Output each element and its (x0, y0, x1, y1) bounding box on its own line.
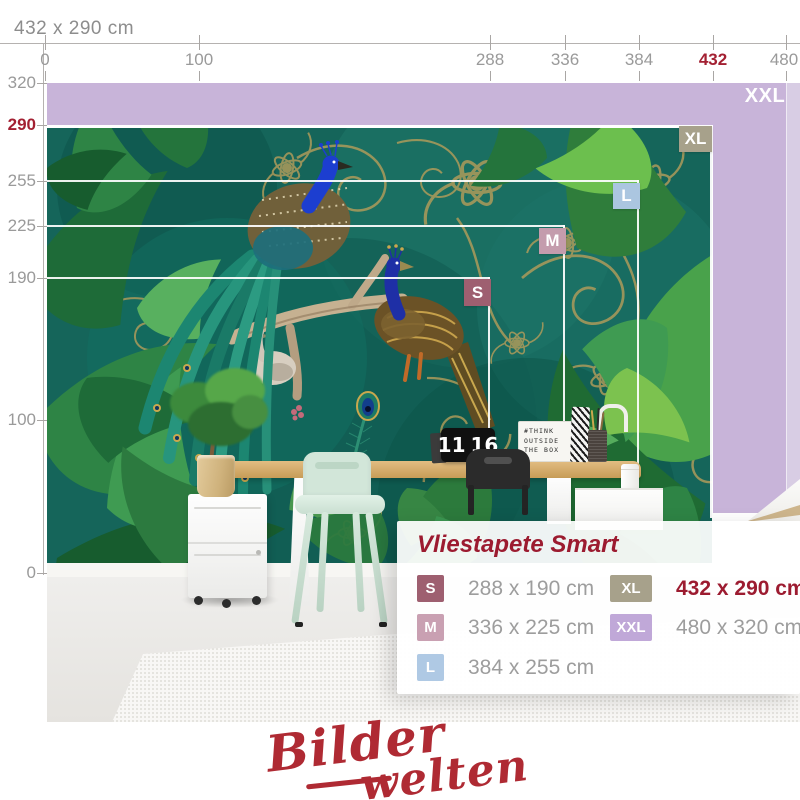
ruler-left-tick-0: 0 (2, 563, 36, 583)
ruler-top-line (0, 43, 800, 44)
cabinet-left (188, 494, 267, 598)
pen-cup (588, 430, 607, 462)
badge-label: M (545, 231, 559, 251)
size-swatch: XL (610, 575, 652, 602)
bilderwelten-logo: Bilder welten (248, 714, 578, 800)
xl-border-right (710, 125, 713, 518)
ruler-left-line (43, 43, 44, 575)
size-swatch: XXL (610, 614, 652, 641)
line-480-mark (786, 83, 787, 513)
ruler-left-tick-290: 290 (2, 115, 36, 135)
ruler-top-tick-432: 432 (699, 50, 727, 70)
size-swatch: L (417, 654, 444, 681)
caster (222, 599, 231, 608)
selected-dimensions-label: 432 x 290 cm (14, 18, 134, 40)
product-size-visualization: 11 16 #THINK OUTSIDE THE BOX (0, 0, 800, 800)
size-info-panel: Vliestapete Smart S 288 x 190 cm M 336 x… (397, 521, 800, 694)
patterned-notebook (570, 407, 590, 463)
ruler-top-tick-0: 0 (40, 50, 49, 70)
size-dims: 288 x 190 cm (468, 577, 594, 601)
caster (252, 596, 261, 605)
size-row-l: L 384 x 255 cm (417, 654, 594, 681)
ruler-top-tick-480: 480 (770, 50, 798, 70)
xl-border-top (47, 125, 713, 128)
ruler-left-tick-100: 100 (2, 410, 36, 430)
lightbox-line: OUTSIDE (524, 438, 572, 446)
size-badge-l: L (613, 183, 640, 209)
badge-label: XL (685, 129, 707, 149)
ruler-left-tick-190: 190 (2, 268, 36, 288)
size-badge-xxl: XXL (742, 85, 788, 108)
plant-pot (197, 455, 235, 497)
lightbox-line: THE BOX (524, 447, 572, 455)
ruler-left-tick-225: 225 (2, 216, 36, 236)
size-row-s: S 288 x 190 cm (417, 575, 594, 602)
size-dims: 432 x 290 cm (676, 577, 800, 601)
ruler-left-tick-320: 320 (2, 73, 36, 93)
size-line-m-top (47, 225, 565, 227)
badge-label: L (621, 186, 631, 206)
size-line-l-top (47, 180, 639, 182)
ruler-left-tick-255: 255 (2, 171, 36, 191)
clock-hours: 11 (438, 435, 466, 455)
size-badge-s: S (464, 279, 491, 306)
size-row-m: M 336 x 225 cm (417, 614, 594, 641)
size-swatch: M (417, 614, 444, 641)
desk-leg (547, 478, 571, 524)
ruler-top-tick-384: 384 (625, 50, 653, 70)
size-line-s-top (47, 277, 490, 279)
xxl-zone-right (713, 83, 786, 513)
black-chair (466, 449, 530, 515)
badge-label: XXL (745, 85, 785, 107)
size-swatch: S (417, 575, 444, 602)
panel-title: Vliestapete Smart (417, 531, 618, 559)
xxl-zone-top (47, 83, 786, 125)
mint-chair (295, 452, 390, 629)
ruler-top-tick-336: 336 (551, 50, 579, 70)
size-row-xl: XL 432 x 290 cm (610, 575, 800, 602)
badge-label: S (472, 283, 483, 303)
desk (227, 461, 641, 478)
size-dims: 384 x 255 cm (468, 656, 594, 680)
size-dims: 336 x 225 cm (468, 616, 594, 640)
size-row-xxl: XXL 480 x 320 cm (610, 614, 800, 641)
size-badge-xl: XL (679, 126, 712, 152)
caster (194, 596, 203, 605)
lightbox-line: #THINK (524, 428, 572, 436)
size-dims: 480 x 320 cm (676, 616, 800, 640)
plant-foliage (232, 395, 268, 429)
size-line-l-right (637, 180, 639, 475)
xxl-zone-right-light (786, 83, 800, 513)
ruler-top-tick-100: 100 (185, 50, 213, 70)
size-badge-m: M (539, 228, 566, 254)
ruler-top-tick-288: 288 (476, 50, 504, 70)
